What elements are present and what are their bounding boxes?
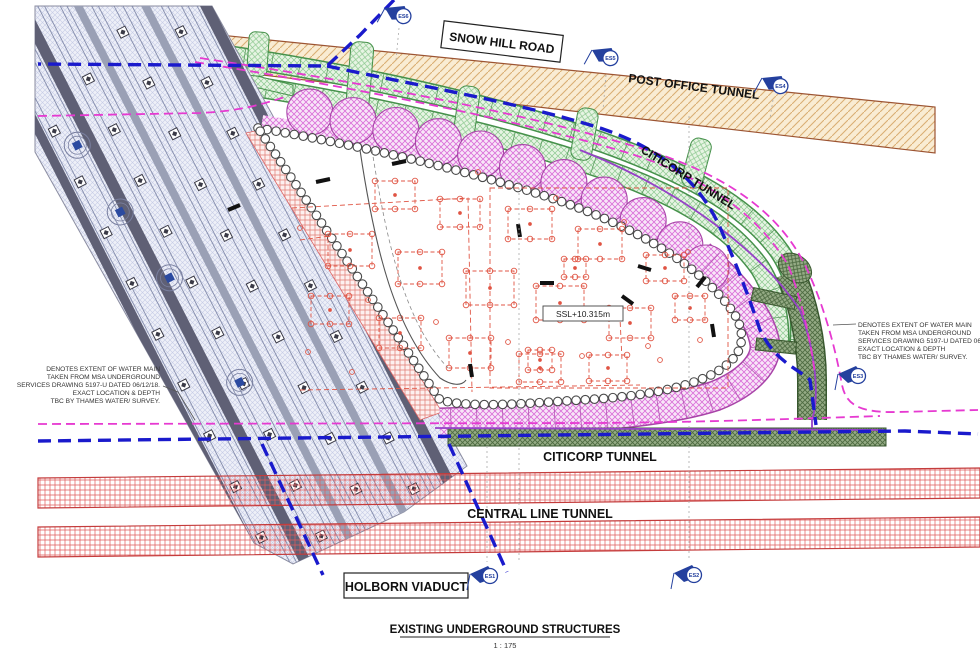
svg-text:ES3: ES3 (853, 374, 863, 380)
survey-marker-es1: ES1 (467, 566, 498, 590)
holborn-viaduct-label: HOLBORN VIADUCT (344, 573, 468, 598)
svg-text:TBC BY THAMES WATER/ SURVEY.: TBC BY THAMES WATER/ SURVEY. (51, 398, 161, 405)
drawing-title: EXISTING UNDERGROUND STRUCTURES 1 : 175 (390, 624, 621, 650)
existing-underground-structures-plan: SNOW HILL ROAD POST OFFICE TUNNEL CITICO… (0, 0, 980, 659)
svg-text:ES1: ES1 (485, 574, 495, 580)
svg-text:TBC BY THAMES WATER/ SURVEY.: TBC BY THAMES WATER/ SURVEY. (858, 354, 968, 361)
water-main-note-right: DENOTES EXTENT OF WATER MAIN TAKEN FROM … (833, 322, 980, 361)
svg-text:SERVICES DRAWING 5197-U DATED: SERVICES DRAWING 5197-U DATED 06/12/18. (858, 338, 980, 345)
ssl-level-label: SSL+10.315m (543, 306, 623, 321)
svg-text:ES5: ES5 (605, 56, 615, 62)
svg-text:TAKEN FROM MSA UNDERGROUND: TAKEN FROM MSA UNDERGROUND (47, 374, 160, 381)
survey-marker-es6: ES6 (377, 0, 413, 32)
central-line-tunnel-label: CENTRAL LINE TUNNEL (467, 507, 613, 521)
svg-text:EXACT LOCATION & DEPTH: EXACT LOCATION & DEPTH (858, 346, 946, 353)
svg-text:SSL+10.315m: SSL+10.315m (556, 309, 610, 319)
survey-marker-es2: ES2 (671, 565, 702, 589)
survey-marker-es5: ES5 (584, 41, 620, 73)
svg-text:ES4: ES4 (775, 84, 786, 90)
svg-text:1 : 175: 1 : 175 (494, 641, 517, 650)
drawing-canvas: SNOW HILL ROAD POST OFFICE TUNNEL CITICO… (0, 0, 980, 659)
svg-text:ES2: ES2 (689, 573, 699, 579)
svg-text:EXACT LOCATION & DEPTH: EXACT LOCATION & DEPTH (73, 390, 161, 397)
svg-text:ES6: ES6 (398, 14, 408, 20)
survey-marker-es3: ES3 (835, 366, 866, 390)
snow-hill-road-label: SNOW HILL ROAD (441, 21, 563, 62)
citicorp-tunnel-lower-label: CITICORP TUNNEL (543, 450, 657, 464)
svg-text:DENOTES EXTENT OF WATER MAIN: DENOTES EXTENT OF WATER MAIN (46, 366, 160, 373)
svg-text:EXISTING UNDERGROUND STRUCTURE: EXISTING UNDERGROUND STRUCTURES (390, 624, 621, 636)
svg-text:TAKEN FROM MSA UNDERGROUND: TAKEN FROM MSA UNDERGROUND (858, 330, 971, 337)
svg-text:DENOTES EXTENT OF WATER MAIN: DENOTES EXTENT OF WATER MAIN (858, 322, 972, 329)
svg-text:SERVICES DRAWING 5197-U DATED: SERVICES DRAWING 5197-U DATED 06/12/18. (17, 382, 160, 389)
svg-text:HOLBORN VIADUCT: HOLBORN VIADUCT (345, 580, 468, 594)
